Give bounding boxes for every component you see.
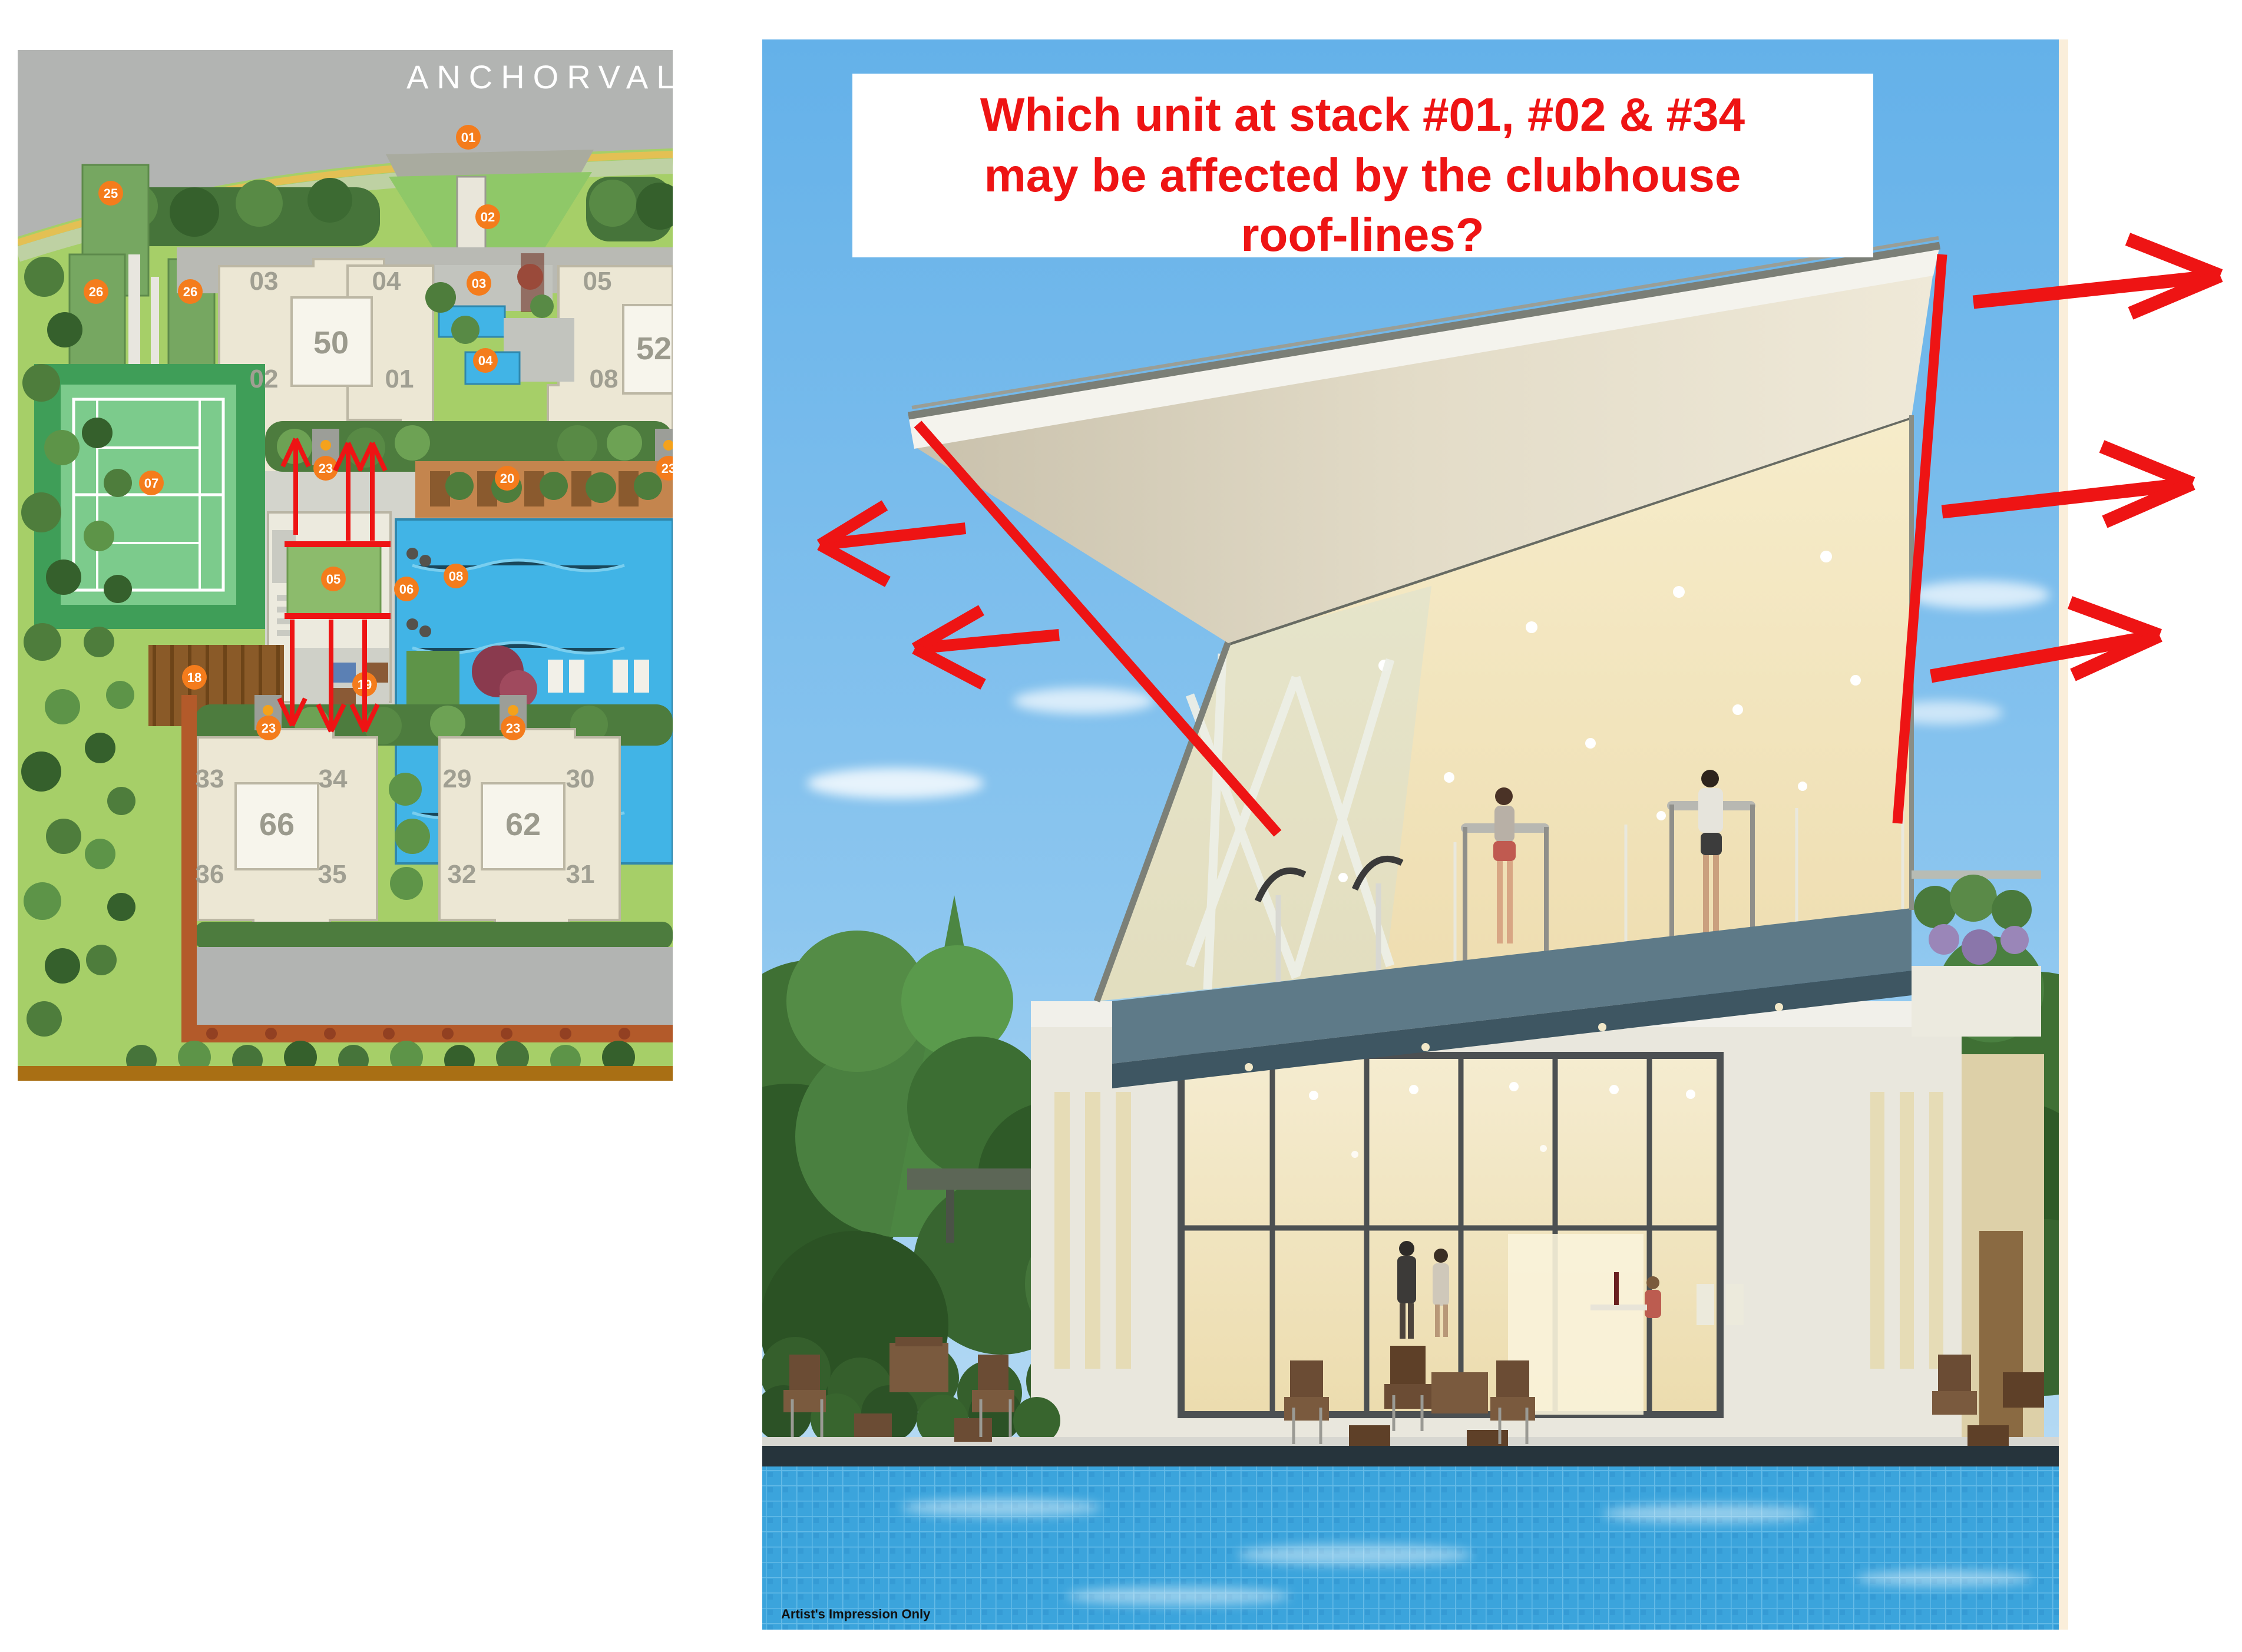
unit-label-03: 03 bbox=[250, 267, 279, 296]
function-room-glass bbox=[1181, 1055, 1744, 1415]
svg-text:06: 06 bbox=[399, 582, 414, 597]
marker-20: 20 bbox=[495, 466, 520, 491]
svg-text:18: 18 bbox=[187, 670, 201, 685]
unit-label-36: 36 bbox=[196, 860, 224, 889]
marker-25: 25 bbox=[98, 181, 123, 206]
marker-18: 18 bbox=[182, 665, 207, 690]
svg-text:20: 20 bbox=[500, 471, 514, 486]
unit-label-02: 02 bbox=[250, 365, 279, 393]
pool bbox=[762, 1446, 2059, 1630]
marker-07: 07 bbox=[139, 471, 164, 495]
slide: ANCHORVALE 03 04 05 50 52 02 01 08 33 34… bbox=[0, 0, 2242, 1652]
marker-26a: 26 bbox=[84, 279, 108, 304]
title-line-2: may be affected by the clubhouse bbox=[984, 149, 1741, 201]
svg-text:03: 03 bbox=[472, 276, 486, 291]
unit-label-29: 29 bbox=[443, 764, 472, 793]
svg-text:26: 26 bbox=[183, 284, 197, 299]
svg-text:07: 07 bbox=[144, 476, 158, 491]
sun-deck bbox=[415, 461, 673, 518]
unit-label-33: 33 bbox=[196, 764, 224, 793]
unit-label-04: 04 bbox=[372, 267, 401, 296]
marker-23c: 23 bbox=[256, 716, 281, 740]
marker-01: 01 bbox=[456, 125, 481, 150]
svg-text:23: 23 bbox=[262, 721, 276, 736]
photo-edge-strip bbox=[2059, 39, 2068, 1630]
tower-label-62: 62 bbox=[505, 807, 541, 842]
marker-23d: 23 bbox=[501, 716, 525, 740]
unit-label-05: 05 bbox=[583, 267, 612, 296]
svg-text:01: 01 bbox=[461, 130, 475, 145]
svg-text:23: 23 bbox=[319, 461, 333, 476]
title-line-1: Which unit at stack #01, #02 & #34 bbox=[980, 88, 1745, 141]
road-name: ANCHORVALE bbox=[406, 58, 713, 95]
marker-03: 03 bbox=[467, 271, 491, 296]
svg-text:23: 23 bbox=[662, 461, 676, 476]
marker-08: 08 bbox=[444, 564, 468, 588]
svg-text:08: 08 bbox=[449, 569, 463, 584]
svg-text:25: 25 bbox=[104, 186, 118, 201]
artist-impression-caption: Artist's Impression Only bbox=[781, 1607, 931, 1621]
unit-label-01: 01 bbox=[385, 365, 414, 393]
entry-door bbox=[1979, 1231, 2023, 1446]
marker-04: 04 bbox=[473, 348, 498, 373]
clubhouse-rendering: Artist's Impression Only bbox=[677, 39, 2132, 1630]
marker-26b: 26 bbox=[178, 279, 203, 304]
wall-slits-left bbox=[1054, 1092, 1131, 1369]
title-line-3: roof-lines? bbox=[1241, 208, 1484, 261]
unit-label-30: 30 bbox=[566, 764, 595, 793]
unit-label-08: 08 bbox=[590, 365, 619, 393]
svg-text:04: 04 bbox=[478, 353, 493, 368]
marker-02: 02 bbox=[475, 204, 500, 229]
unit-label-32: 32 bbox=[448, 860, 477, 889]
tower-label-50: 50 bbox=[313, 325, 349, 360]
marker-23b: 23 bbox=[656, 456, 681, 481]
svg-text:26: 26 bbox=[89, 284, 103, 299]
svg-text:02: 02 bbox=[481, 210, 495, 224]
marker-05: 05 bbox=[321, 567, 346, 591]
unit-label-34: 34 bbox=[319, 764, 348, 793]
svg-text:05: 05 bbox=[326, 572, 340, 587]
unit-label-35: 35 bbox=[318, 860, 347, 889]
question-title-box: Which unit at stack #01, #02 & #34 may b… bbox=[852, 74, 1873, 261]
marker-06: 06 bbox=[394, 577, 419, 601]
site-map: ANCHORVALE 03 04 05 50 52 02 01 08 33 34… bbox=[18, 50, 713, 1081]
tower-label-52: 52 bbox=[636, 331, 672, 366]
wall-slits-right bbox=[1870, 1092, 1943, 1369]
tower-label-66: 66 bbox=[259, 807, 295, 842]
unit-label-31: 31 bbox=[566, 860, 595, 889]
svg-text:23: 23 bbox=[506, 721, 520, 736]
